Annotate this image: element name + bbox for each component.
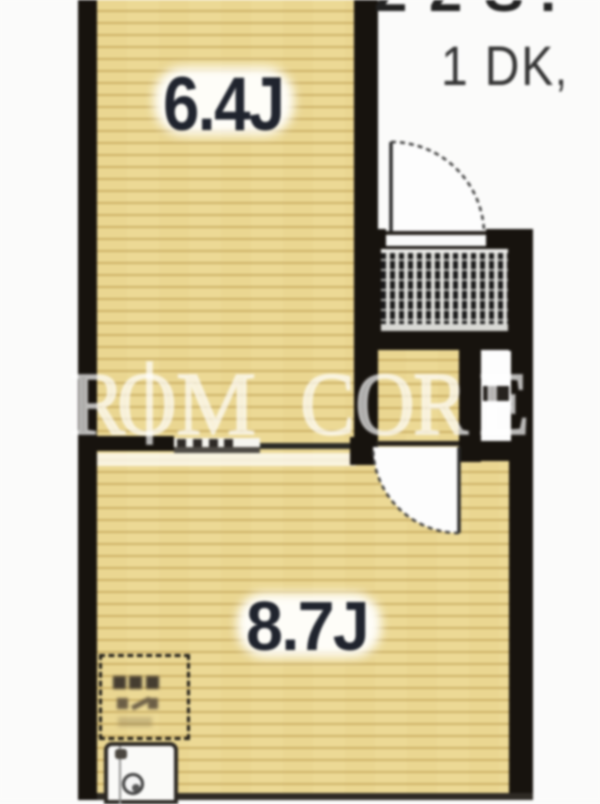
svg-text:C: C (300, 354, 355, 454)
svg-text:R: R (413, 354, 469, 454)
svg-text:M: M (176, 355, 256, 454)
svg-text:O: O (355, 354, 415, 454)
svg-text:E: E (479, 354, 530, 454)
